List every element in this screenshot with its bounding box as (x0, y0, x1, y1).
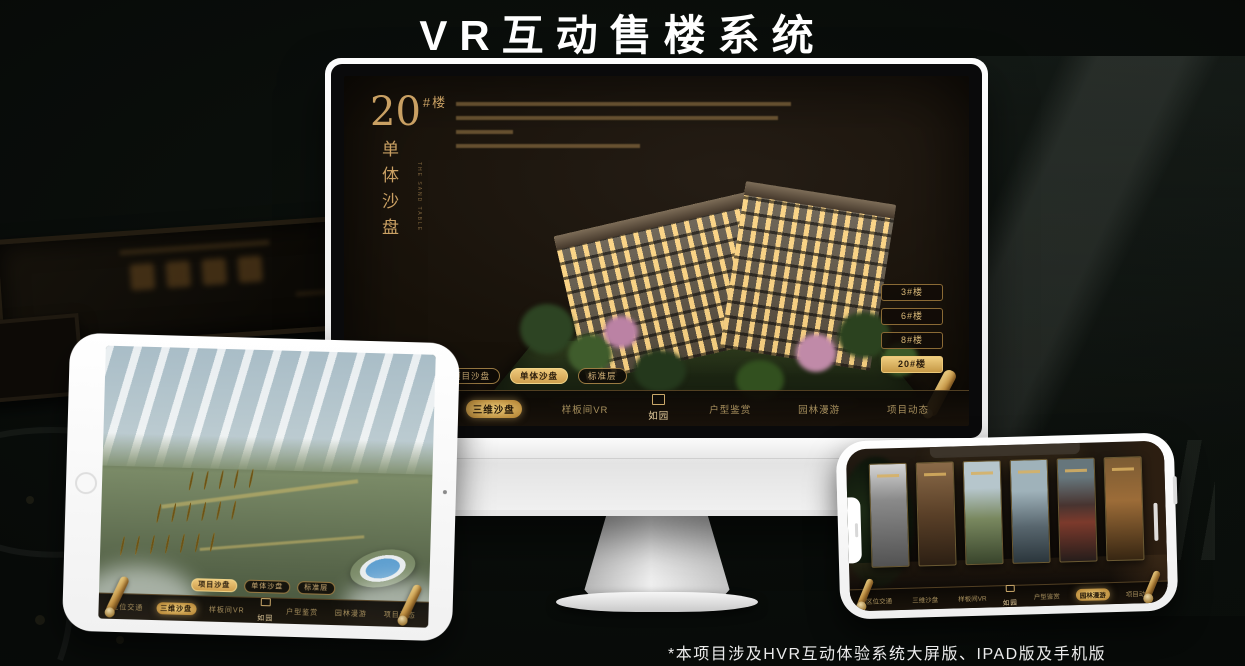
tab-standard-floor[interactable]: 标准层 (578, 368, 627, 384)
brand-logo: 如园 (648, 394, 669, 423)
tablet-screen: 项目沙盘 单体沙盘 标准层 区位交通 三维沙盘 样板间VR 如园 户型鉴赏 园林… (98, 346, 435, 628)
text-line (456, 116, 778, 120)
building-pin-icon[interactable] (231, 501, 237, 520)
tab-single-sandtable[interactable]: 单体沙盘 (510, 368, 568, 384)
phone-notch (847, 497, 862, 563)
tree (634, 350, 686, 392)
building-pin-icon[interactable] (171, 504, 177, 523)
phone-side-button[interactable] (1173, 476, 1178, 504)
logo-text: 如园 (257, 613, 273, 621)
building-pin-icon[interactable] (233, 470, 239, 489)
gallery-panel[interactable] (1010, 459, 1051, 564)
building-pin-icon[interactable] (209, 533, 215, 552)
sandtable-tabs: 项目沙盘 单体沙盘 标准层 (442, 368, 627, 384)
nav-item-garden-tour[interactable]: 园林漫游 (1076, 588, 1110, 601)
building-number-suffix: #楼 (423, 95, 447, 110)
ceiling-lamp (930, 443, 1080, 458)
building-button-3[interactable]: 3#楼 (881, 284, 943, 301)
building-pin-icon[interactable] (218, 471, 224, 490)
nav-item-floorplans[interactable]: 户型鉴赏 (1030, 589, 1064, 602)
building-button-8[interactable]: 8#楼 (881, 332, 943, 349)
building-headline: 20#楼 单体沙盘 THE SAND TABLE (370, 92, 447, 260)
monitor-stand-base (556, 592, 758, 612)
monitor-stand-neck (583, 514, 731, 598)
building-pin-icon[interactable] (149, 535, 155, 554)
building-button-6[interactable]: 6#楼 (881, 308, 943, 325)
building-selector: 3#楼 6#楼 8#楼 20#楼 (881, 284, 943, 380)
plaque-char (165, 260, 191, 288)
building-button-20[interactable]: 20#楼 (881, 356, 943, 373)
building-pin-icon[interactable] (135, 536, 141, 555)
headline-subtitle-en: THE SAND TABLE (416, 162, 422, 232)
tab-standard-floor[interactable]: 标准层 (297, 581, 335, 595)
nav-item-showroom-vr[interactable]: 样板间VR (954, 591, 991, 604)
plaque-char (130, 263, 156, 291)
building-pin-icon[interactable] (164, 535, 170, 554)
gallery-panel[interactable] (1057, 458, 1098, 563)
logo-seal-icon (652, 394, 665, 405)
gallery-panel[interactable] (916, 461, 957, 566)
logo-seal-icon (261, 598, 271, 606)
nav-item-floorplans[interactable]: 户型鉴赏 (282, 605, 322, 618)
plaque-title-line (120, 240, 270, 255)
nav-item-showroom-vr[interactable]: 样板间VR (555, 400, 616, 418)
building-row (120, 526, 414, 556)
building-pin-icon[interactable] (179, 534, 185, 553)
brand-logo: 如园 (1002, 584, 1018, 608)
gallery-panel[interactable] (869, 463, 910, 568)
text-line (456, 102, 791, 106)
nav-item-project-news[interactable]: 项目动态 (880, 400, 936, 418)
brand-logo: 如园 (257, 597, 274, 623)
building-pin-icon[interactable] (248, 469, 254, 488)
phone-device: 区位交通 三维沙盘 样板间VR 如园 户型鉴赏 园林漫游 项目动态 (836, 432, 1179, 619)
nav-item-3d-sandtable[interactable]: 三维沙盘 (908, 592, 942, 605)
gallery-panels (869, 456, 1145, 568)
building-pin-icon[interactable] (203, 471, 209, 490)
tree-pink (796, 334, 836, 372)
building-row (156, 494, 420, 523)
logo-text: 如园 (648, 411, 669, 422)
building-pin-icon[interactable] (201, 502, 207, 521)
gallery-panel[interactable] (1104, 456, 1145, 561)
tab-single-sandtable[interactable]: 单体沙盘 (244, 580, 290, 594)
nav-item-3d-sandtable[interactable]: 三维沙盘 (156, 602, 196, 615)
building-pin-icon[interactable] (216, 502, 222, 521)
nav-item-floorplans[interactable]: 户型鉴赏 (702, 400, 758, 418)
gallery-panel[interactable] (963, 460, 1004, 565)
tablet-device: 项目沙盘 单体沙盘 标准层 区位交通 三维沙盘 样板间VR 如园 户型鉴赏 园林… (62, 333, 460, 642)
page-title: VR互动售楼系统 (0, 2, 1245, 63)
building-row (188, 463, 426, 491)
logo-text: 如园 (1003, 598, 1018, 606)
footnote: *本项目涉及HVR互动体验系统大屏版、IPAD版及手机版 (668, 640, 1106, 664)
promo-canvas: VR互动售楼系统 20#楼 单体沙盘 THE SAND TABLE (0, 0, 1245, 666)
tab-project-sandtable[interactable]: 项目沙盘 (191, 578, 237, 592)
tablet-camera-icon (443, 490, 447, 494)
headline-subtitle: 单体沙盘 (376, 140, 401, 260)
plaque-char (237, 255, 263, 283)
building-pin-icon[interactable] (194, 534, 200, 553)
building-pin-icon[interactable] (186, 503, 192, 522)
tree (520, 304, 574, 354)
nav-item-garden-tour[interactable]: 园林漫游 (791, 400, 847, 418)
phone-screen: 区位交通 三维沙盘 样板间VR 如园 户型鉴赏 园林漫游 项目动态 (846, 441, 1168, 612)
tablet-home-button[interactable] (75, 472, 98, 495)
tree-pink (604, 316, 638, 348)
nav-item-showroom-vr[interactable]: 样板间VR (205, 603, 249, 616)
plaque-char (201, 258, 227, 286)
nav-item-3d-sandtable[interactable]: 三维沙盘 (466, 400, 522, 418)
logo-seal-icon (1005, 584, 1014, 591)
building-pin-icon[interactable] (188, 472, 194, 491)
building-pin-icon[interactable] (156, 504, 162, 523)
nav-item-garden-tour[interactable]: 园林漫游 (331, 607, 371, 620)
building-number: 20 (370, 89, 421, 135)
